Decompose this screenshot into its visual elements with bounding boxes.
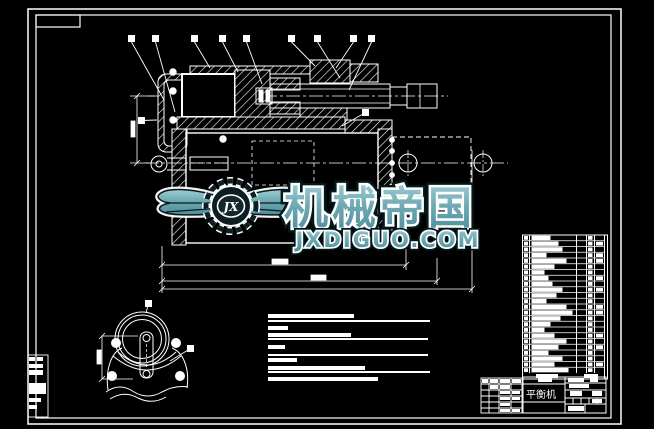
cad-drawing: 平衡机 (0, 0, 654, 429)
note-line-blob (268, 338, 428, 340)
parts-qty-blob (589, 265, 593, 268)
parts-name-blob (532, 334, 554, 337)
balloon-marker (138, 117, 145, 124)
parts-material-blob (597, 311, 603, 314)
balloon-leader (195, 42, 211, 68)
parts-name-blob (532, 242, 558, 245)
parts-name-blob (532, 253, 546, 256)
parts-no-blob (525, 357, 528, 360)
parts-name-blob (532, 282, 552, 285)
parts-material-blob (597, 346, 603, 349)
parts-name-blob (532, 305, 566, 308)
parts-qty-blob (589, 294, 593, 297)
parts-material-blob (597, 363, 603, 366)
note-line-blob (268, 320, 430, 322)
parts-material-blob (597, 254, 603, 257)
cylinder-body (182, 74, 235, 117)
parts-no-blob (525, 277, 528, 280)
parts-qty-blob (589, 340, 593, 343)
parts-qty-blob (589, 277, 593, 280)
dimension-value-blob (311, 275, 326, 280)
parts-qty-blob (589, 283, 593, 286)
note-line-blob (268, 326, 288, 330)
parts-no-blob (525, 283, 528, 286)
balloon-marker (191, 35, 198, 42)
note-line-blob (268, 358, 297, 362)
parts-list-table (523, 235, 608, 379)
svg-text:JXDIGUO.COM: JXDIGUO.COM (293, 228, 480, 252)
note-line-blob (268, 366, 365, 370)
parts-qty-blob (589, 323, 593, 326)
parts-no-blob (525, 237, 528, 240)
parts-name-blob (532, 311, 572, 314)
balloon-marker (243, 35, 250, 42)
parts-name-blob (532, 351, 548, 354)
title-block: 平衡机 (523, 377, 606, 413)
parts-no-blob (525, 311, 528, 314)
parts-name-blob (532, 340, 566, 343)
note-line-blob (268, 345, 285, 349)
balloon-leader (292, 42, 316, 66)
parts-qty-blob (589, 357, 593, 360)
parts-no-blob (525, 323, 528, 326)
parts-name-blob (532, 248, 562, 251)
parts-qty-blob (589, 271, 593, 274)
parts-name-blob (532, 345, 558, 348)
parts-no-blob (525, 317, 528, 320)
svg-text:机械帝国: 机械帝国 (284, 183, 476, 234)
parts-name-blob (532, 259, 566, 262)
clevis-and-rod (151, 156, 228, 172)
parts-qty-blob (589, 242, 593, 245)
parts-material-blob (597, 334, 603, 337)
balloon-marker (145, 300, 152, 307)
frame-bar (177, 117, 345, 129)
note-line-blob (268, 354, 428, 356)
parts-qty-blob (589, 363, 593, 366)
balloon-marker (362, 109, 369, 116)
logo-jx-text: JX (222, 200, 240, 214)
parts-qty-blob (589, 317, 593, 320)
gear-logo-icon: JX (206, 181, 256, 231)
parts-qty-blob (589, 300, 593, 303)
parts-no-blob (525, 300, 528, 303)
balloon-marker (288, 35, 295, 42)
parts-qty-blob (589, 346, 593, 349)
watermark-domain: JXDIGUO.COM JXDIGUO.COM JXDIGUO.COM (293, 228, 480, 252)
parts-no-blob (525, 242, 528, 245)
parts-no-blob (525, 265, 528, 268)
balloon-marker (368, 35, 375, 42)
balloon-marker (314, 35, 321, 42)
note-line-blob (268, 377, 378, 381)
parts-no-blob (525, 363, 528, 366)
parts-material-blob (597, 277, 603, 280)
parts-qty-blob (589, 369, 593, 372)
parts-name-blob (532, 322, 550, 325)
link-arm (140, 332, 153, 378)
parts-qty-blob (589, 254, 593, 257)
balloon-marker (187, 345, 194, 352)
parts-no-blob (525, 271, 528, 274)
parts-qty-blob (589, 288, 593, 291)
note-line-blob (268, 333, 351, 337)
note-line-blob (268, 371, 430, 373)
parts-qty-blob (589, 311, 593, 314)
border-strip (28, 355, 48, 417)
parts-no-blob (525, 329, 528, 332)
balloon-marker (350, 35, 357, 42)
parts-name-blob (532, 363, 554, 366)
dimension-value-blob (131, 121, 135, 137)
dimension-value-blob (97, 350, 101, 364)
parts-name-blob (532, 265, 554, 268)
note-line-blob (268, 314, 354, 318)
parts-no-blob (525, 254, 528, 257)
parts-no-blob (525, 340, 528, 343)
parts-name-blob (532, 271, 544, 274)
parts-no-blob (525, 248, 528, 251)
parts-material-blob (597, 306, 603, 309)
dimension-value-blob (272, 259, 288, 264)
watermark-brand: 机械帝国 机械帝国 机械帝国 (284, 183, 476, 234)
parts-qty-blob (589, 248, 593, 251)
parts-material-blob (597, 242, 603, 245)
technical-notes-block (268, 314, 430, 381)
parts-list-rows (523, 235, 605, 372)
parts-name-blob (532, 288, 562, 291)
balloon-marker (128, 35, 135, 42)
parts-name-blob (532, 317, 560, 320)
parts-no-blob (525, 260, 528, 263)
parts-name-blob (532, 276, 548, 279)
parts-name-blob (532, 299, 546, 302)
parts-qty-blob (589, 329, 593, 332)
piston-block (235, 70, 270, 117)
parts-material-blob (597, 260, 603, 263)
parts-no-blob (525, 352, 528, 355)
cad-drawing-canvas: 平衡机 (0, 0, 654, 429)
parts-no-blob (525, 306, 528, 309)
legend-table (481, 378, 522, 413)
parts-no-blob (525, 288, 528, 291)
parts-qty-blob (589, 352, 593, 355)
product-name: 平衡机 (526, 388, 556, 401)
parts-qty-blob (589, 306, 593, 309)
sheet-ref-box (36, 15, 80, 27)
balloon-marker (152, 35, 159, 42)
parts-name-blob (532, 368, 568, 371)
parts-name-blob (532, 357, 562, 360)
balloon-leader (132, 42, 165, 100)
parts-name-blob (532, 328, 544, 331)
parts-name-blob (532, 294, 556, 297)
parts-no-blob (525, 334, 528, 337)
parts-no-blob (525, 369, 528, 372)
parts-qty-blob (589, 260, 593, 263)
parts-qty-blob (589, 237, 593, 240)
parts-no-blob (525, 294, 528, 297)
saddle-base (106, 339, 188, 402)
parts-name-blob (532, 236, 550, 239)
parts-no-blob (525, 346, 528, 349)
parts-material-blob (597, 288, 603, 291)
watermark: JX 机械帝国 机械帝国 机械帝国 JXDIGUO.COM JXDIGUO.CO… (158, 181, 480, 252)
parts-qty-blob (589, 334, 593, 337)
balloon-marker (219, 35, 226, 42)
end-view (106, 312, 188, 401)
